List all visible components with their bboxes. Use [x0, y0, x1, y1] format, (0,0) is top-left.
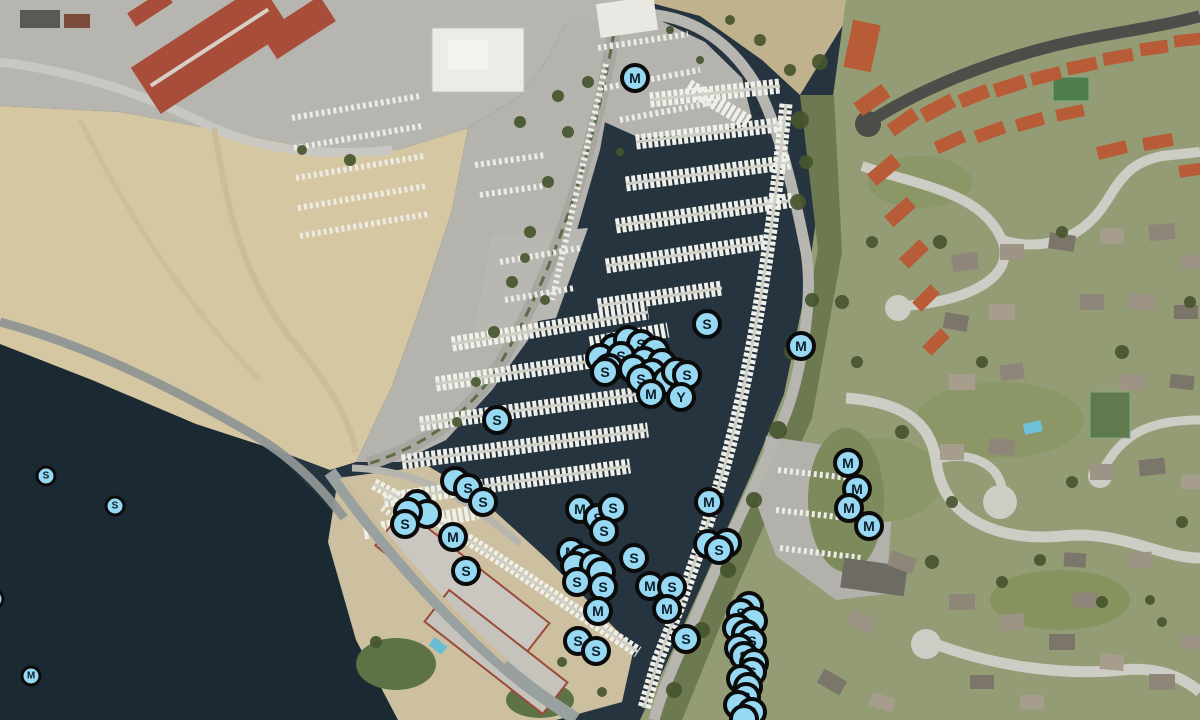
- map-marker-s[interactable]: S: [390, 509, 420, 539]
- map-marker-s[interactable]: S: [671, 624, 701, 654]
- map-marker-s[interactable]: S: [482, 405, 512, 435]
- map-marker-y[interactable]: Y: [666, 382, 696, 412]
- map-marker-s[interactable]: S: [704, 535, 734, 565]
- map-marker-s[interactable]: S: [581, 636, 611, 666]
- map-marker-m[interactable]: M: [854, 511, 884, 541]
- map-marker-s[interactable]: S: [692, 309, 722, 339]
- map-marker-s[interactable]: S: [562, 567, 592, 597]
- map-marker-m[interactable]: M: [694, 487, 724, 517]
- markers-layer: MSMSSSSSSSMYSSSMSMSSSMSSMSMSMMSSSSSSSSSS…: [0, 0, 1200, 720]
- map-marker-m[interactable]: M: [636, 379, 666, 409]
- map-marker-m[interactable]: M: [652, 594, 682, 624]
- map-marker-s[interactable]: S: [105, 496, 126, 517]
- map-marker-s[interactable]: S: [619, 543, 649, 573]
- map-marker-s[interactable]: S: [589, 516, 619, 546]
- map-marker-m[interactable]: M: [786, 331, 816, 361]
- map-marker-s[interactable]: S: [468, 487, 498, 517]
- map-marker-m[interactable]: M: [21, 666, 42, 687]
- map-marker-s[interactable]: S: [36, 466, 57, 487]
- map-marker-m[interactable]: M: [438, 522, 468, 552]
- map-marker-s[interactable]: S: [451, 556, 481, 586]
- map-marker-stacked[interactable]: [0, 589, 5, 610]
- map-marker-s[interactable]: S: [590, 357, 620, 387]
- map-marker-m[interactable]: M: [583, 596, 613, 626]
- map-viewport[interactable]: MSMSSSSSSSMYSSSMSMSSSMSSMSMSMMSSSSSSSSSS…: [0, 0, 1200, 720]
- map-marker-m[interactable]: M: [620, 63, 650, 93]
